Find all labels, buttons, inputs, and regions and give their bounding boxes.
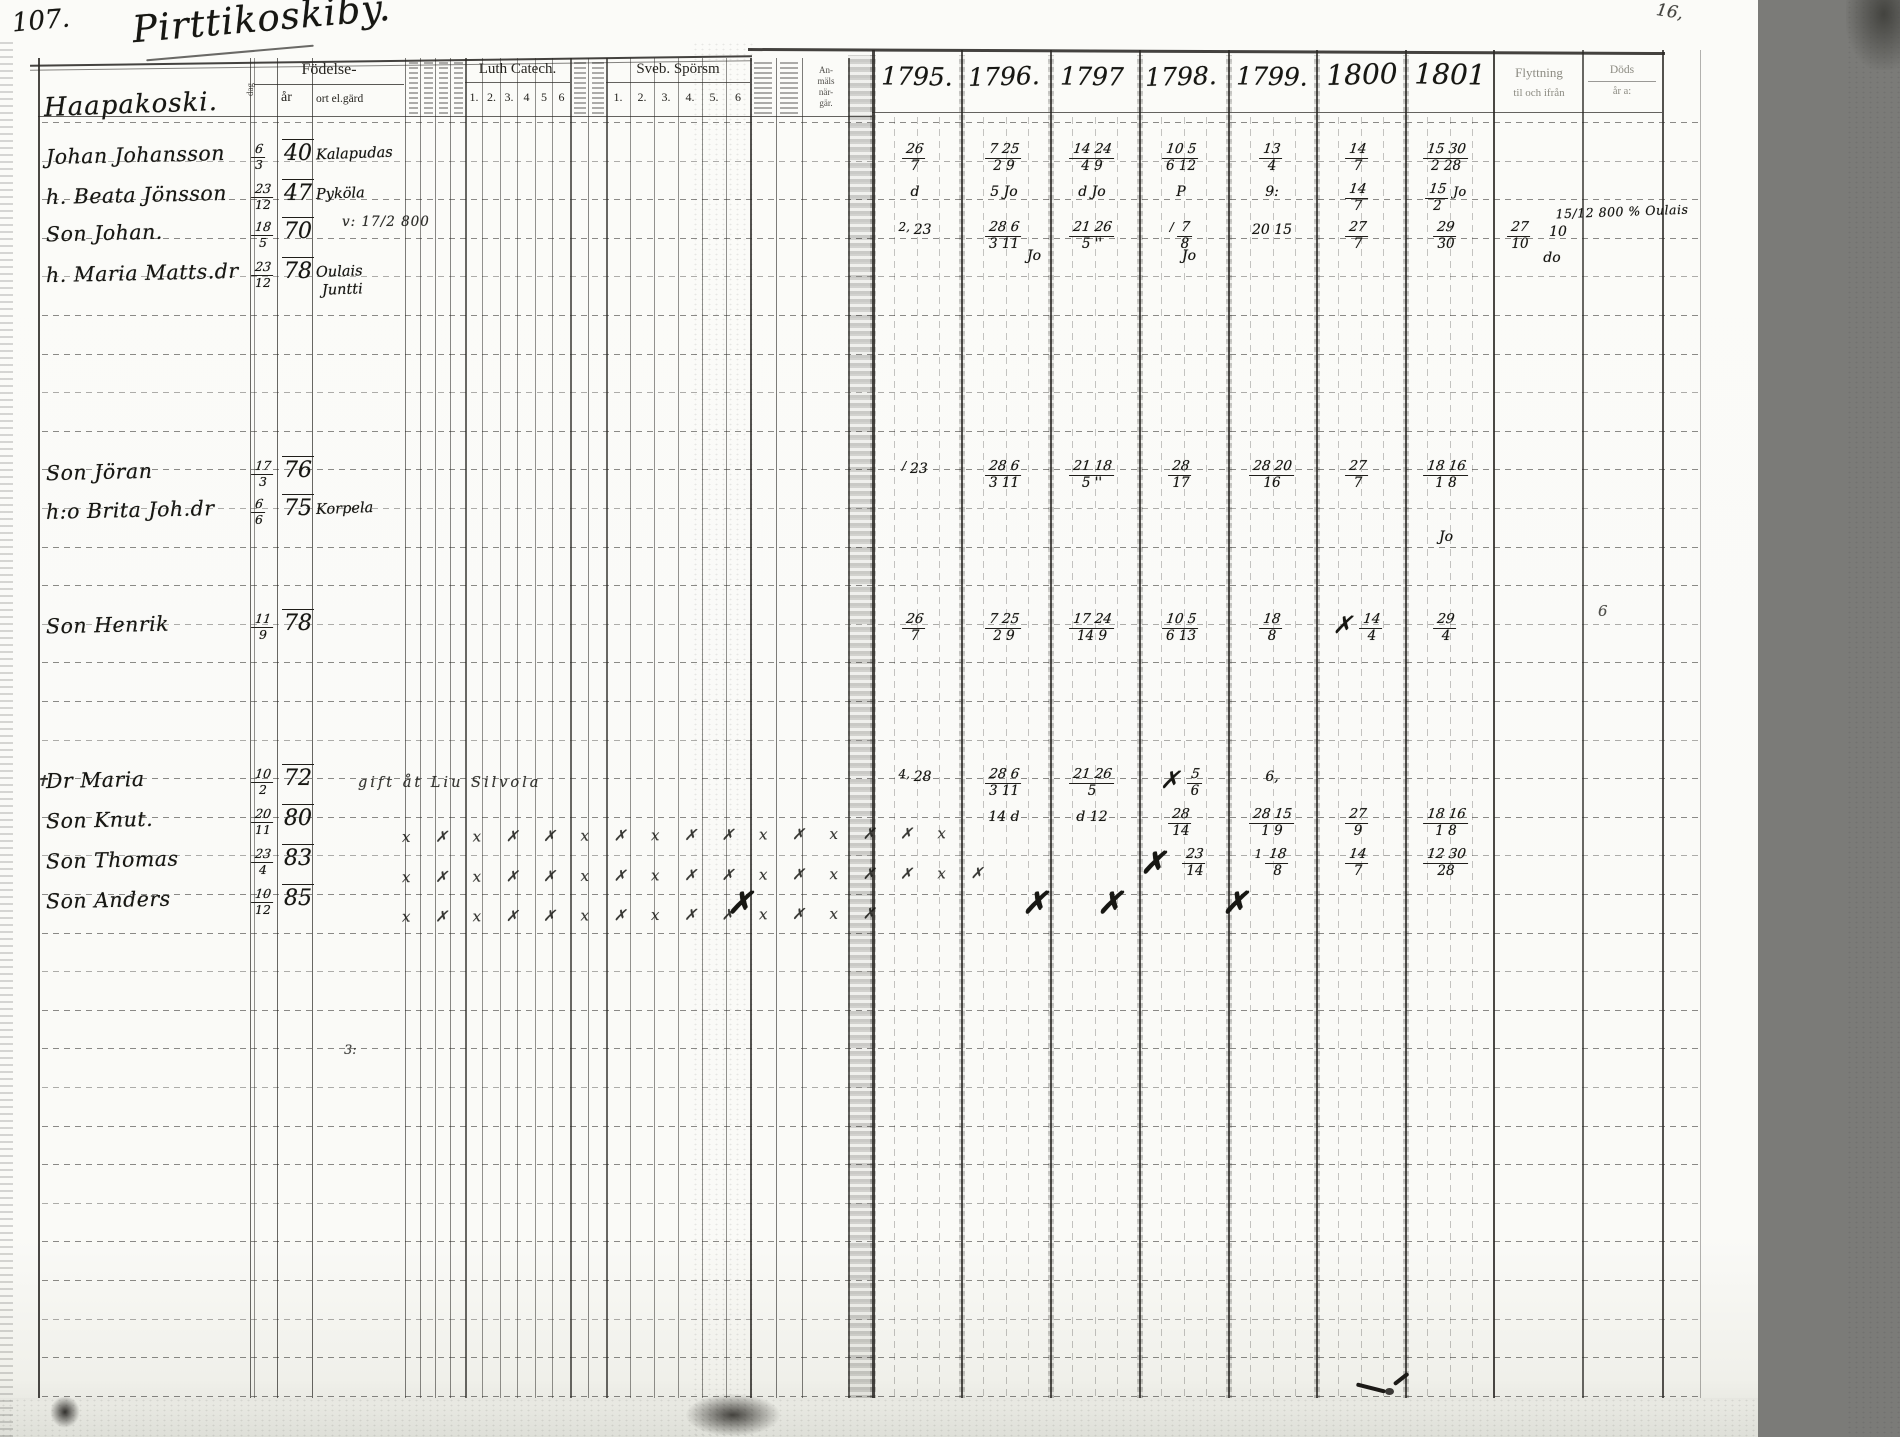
column-rule [465, 58, 467, 1398]
communion-mark: 4, 28 [887, 768, 943, 785]
year-boundary-band [1137, 55, 1143, 1398]
person-name: Dr Maria [46, 769, 145, 793]
birth-year: 78 [282, 260, 314, 283]
date-fraction: 7 252 9 [986, 613, 1022, 643]
year-subcolumn-rule [1427, 116, 1428, 1396]
mark-value: do [1543, 250, 1560, 266]
birth-date: 102 [252, 768, 274, 796]
communion-mark: ✗ 56 [1153, 768, 1209, 798]
birth-date-fraction: 2011 [252, 808, 274, 836]
communion-mark: 7 252 9 [976, 613, 1032, 643]
birth-date: 2312 [252, 261, 274, 289]
date-fraction: 18 161 8 [1424, 808, 1469, 838]
year-subcolumn-rule [894, 116, 895, 1396]
sporsm-column-number: 2. [632, 91, 652, 104]
binding-gutter-shadow [692, 42, 756, 1437]
communion-mark: 28 63 11 [976, 768, 1032, 798]
birth-date: 1012 [252, 888, 274, 916]
year-boundary-band [959, 55, 965, 1398]
year-subcolumn-rule [1361, 116, 1362, 1396]
column-rule [1582, 50, 1584, 1398]
communion-mark: 18 161 8 [1418, 808, 1474, 838]
book-cover-background [1846, 0, 1900, 1437]
birth-year: 75 [282, 497, 314, 520]
communion-mark: ✗ [1207, 888, 1263, 920]
communion-mark: d Jo [1064, 183, 1120, 200]
birth-date-fraction: 2312 [252, 183, 274, 211]
birth-year: 40 [282, 142, 314, 165]
birth-year: 76 [282, 459, 314, 482]
large-x-mark: ✗ [1140, 846, 1165, 881]
date-fraction: 21 265 [1070, 768, 1115, 798]
column-rule [630, 58, 631, 1398]
column-rule [776, 58, 777, 1398]
year-header: 1801 [1406, 59, 1494, 90]
date-fraction: 56 [1188, 768, 1203, 798]
date-fraction: 7 252 9 [986, 143, 1022, 173]
year-subcolumn-rule [1206, 116, 1207, 1396]
communion-mark: d 12 [1064, 808, 1120, 825]
communion-mark: 134 [1244, 143, 1300, 173]
date-fraction: 134 [1260, 143, 1283, 173]
vertical-header-text [574, 60, 586, 114]
bottom-page-edge [0, 1398, 1758, 1437]
birth-date-fraction: 234 [252, 848, 274, 876]
communion-mark: 18 161 8 [1418, 460, 1474, 490]
dod-header-line2: år a: [1586, 86, 1658, 97]
person-name: Son Knut. [46, 809, 154, 833]
year-header: 1796. [960, 63, 1049, 92]
column-rule [482, 58, 483, 1398]
communion-mark: 147 [1330, 143, 1386, 173]
communion-mark: 6, [1244, 768, 1300, 785]
communion-mark: ✗ [1007, 888, 1063, 920]
mark-value: 28 [914, 769, 932, 785]
catechism-note: v: 17/2 800 [342, 215, 430, 229]
communion-mark: 188 [1244, 613, 1300, 643]
date-fraction: 28 2016 [1250, 460, 1295, 490]
birth-date-fraction: 119 [252, 613, 274, 641]
luth-column-number: 2. [484, 91, 500, 104]
birth-date-fraction: 173 [252, 460, 274, 488]
birth-date: 119 [252, 613, 274, 641]
date-fraction: 28 63 11 [986, 768, 1022, 798]
mark-value: 10 [1549, 224, 1567, 240]
communion-mark: 14 d [976, 808, 1032, 825]
column-rule [570, 58, 572, 1398]
date-fraction: 28 151 9 [1250, 808, 1295, 838]
date-fraction: 267 [903, 143, 926, 173]
column-rule [588, 58, 589, 1398]
person-name: Son Thomas [46, 848, 179, 873]
date-fraction: 14 244 9 [1070, 143, 1115, 173]
birth-place: Pyköla [316, 186, 365, 203]
birth-year-value: 80 [282, 804, 314, 831]
communion-mark: 21 265 [1064, 768, 1120, 798]
anmals-header-line: när- [806, 88, 846, 97]
column-rule [1493, 50, 1495, 1398]
mark-prefix: 1 [1255, 847, 1266, 861]
column-rule [420, 58, 421, 1398]
birth-date: 66 [252, 498, 266, 526]
mark-value: 9: [1265, 184, 1279, 200]
communion-mark: 277 [1330, 221, 1386, 251]
large-x-mark: ✗ [1222, 886, 1247, 921]
vertical-header-text [454, 60, 463, 114]
mark-value: Jo [1027, 248, 1041, 264]
person-name: Son Henrik [46, 614, 170, 638]
dod-header-line1: Döds [1586, 64, 1658, 76]
column-rule [38, 58, 40, 1398]
birth-place: Kalapudas [316, 146, 393, 164]
birth-year: 70 [282, 220, 314, 243]
folio-number: 107. [11, 6, 71, 38]
mark-value: Jo [1182, 248, 1196, 264]
column-rule [552, 58, 553, 1398]
luth-column-number: 4 [519, 91, 535, 104]
mark-value: Jo [1439, 529, 1453, 545]
communion-mark: do [1524, 249, 1580, 266]
communion-mark: 2814 [1153, 808, 1209, 838]
birth-year: 72 [282, 767, 314, 790]
communion-mark: P [1153, 183, 1209, 200]
date-fraction: 188 [1266, 848, 1289, 878]
birth-year-value: 78 [282, 257, 314, 284]
mark-value: 23 [910, 461, 928, 477]
date-fraction: 188 [1260, 613, 1283, 643]
year-subcolumn-rule [1295, 116, 1296, 1396]
year-subcolumn-rule [1028, 116, 1029, 1396]
communion-mark: d [887, 183, 943, 200]
birth-year-value: 72 [282, 764, 314, 791]
date-fraction: 12 3028 [1424, 848, 1469, 878]
mark-value: P [1176, 184, 1185, 200]
communion-mark: 14 244 9 [1064, 143, 1120, 173]
column-rule [517, 58, 518, 1398]
communion-mark: 294 [1418, 613, 1474, 643]
vertical-header-text [780, 60, 798, 114]
communion-mark: 2314 [1167, 848, 1223, 878]
person-name: Son Jöran [46, 461, 153, 485]
column-rule [405, 58, 406, 1398]
mark-prefix: ✗ [1160, 766, 1188, 794]
birth-date: 234 [252, 848, 274, 876]
communion-mark: 277 [1330, 460, 1386, 490]
year-subcolumn-rule [1117, 116, 1118, 1396]
column-rule [535, 58, 536, 1398]
luth-column-number: 6 [554, 91, 570, 104]
communion-mark: Jo [1161, 247, 1217, 264]
date-fraction: 21 265 '' [1070, 221, 1115, 251]
year-header: 1800 [1318, 59, 1407, 91]
year-subcolumn-rule [1250, 116, 1251, 1396]
date-fraction: 2314 [1183, 848, 1206, 878]
date-fraction: 10 56 12 [1163, 143, 1199, 173]
anmals-header-line: mäls [806, 77, 846, 86]
year-subcolumn-rule [1338, 116, 1339, 1396]
communion-mark: 267 [887, 143, 943, 173]
flyttning-header-line2: til och ifrån [1496, 88, 1582, 100]
bottom-left-ink-blob [50, 1396, 80, 1428]
person-name: h. Beata Jönsson [46, 183, 227, 209]
birth-year: 85 [282, 887, 314, 910]
date-fraction: 147 [1346, 143, 1369, 173]
sporsm-column-number: 1. [608, 91, 628, 104]
person-name: Son Anders [46, 889, 171, 913]
birth-date-fraction: 1012 [252, 888, 274, 916]
year-header: 1795. [873, 63, 961, 91]
luth-column-number: 1. [466, 91, 482, 104]
gutter-ink-blob [686, 1394, 780, 1436]
mark-value: 20 15 [1252, 222, 1292, 238]
birth-year-value: 47 [282, 179, 314, 206]
birth-year-value: 76 [282, 456, 314, 483]
large-x-mark: ✗ [1097, 886, 1122, 921]
column-rule [435, 58, 436, 1398]
large-x-mark: ✗ [1022, 886, 1047, 921]
year-header: 1797 [1048, 63, 1136, 91]
luth-column-number: 3. [501, 91, 517, 104]
year-boundary-band [1403, 55, 1409, 1398]
date-fraction: 17 2414 9 [1070, 613, 1115, 643]
year-subcolumn-rule [1273, 116, 1274, 1396]
year-subcolumn-rule [1161, 116, 1162, 1396]
column-rule [250, 58, 251, 1398]
mark-prefix: 2, [898, 220, 913, 234]
communion-mark: 152 Jo [1418, 183, 1474, 213]
year-boundary-band [1314, 55, 1320, 1398]
year-subcolumn-rule [917, 116, 918, 1396]
communion-mark: 147 [1330, 848, 1386, 878]
person-name: Johan Johansson [46, 143, 225, 169]
year-boundary-band [1226, 55, 1232, 1398]
corner-shadow [1846, 0, 1900, 70]
flyttning-header-line1: Flyttning [1496, 66, 1582, 80]
date-fraction: 10 56 13 [1163, 613, 1199, 643]
mark-prefix: / [902, 459, 910, 473]
date-fraction: 147 [1346, 848, 1369, 878]
year-subcolumn-rule [1006, 116, 1007, 1396]
sporsm-column-number: 3. [656, 91, 676, 104]
date-fraction: 2814 [1169, 808, 1192, 838]
mark-value: 5 Jo [990, 184, 1017, 200]
vertical-header-text [424, 60, 433, 114]
mark-value: 14 d [988, 809, 1019, 825]
communion-mark: ✗ 144 [1330, 613, 1386, 643]
communion-mark: 2, 23 [887, 221, 943, 238]
birth-year-value: 40 [282, 139, 314, 166]
communion-mark: 15 302 28 [1418, 143, 1474, 173]
birth-place-header: ort el.gärd [316, 93, 363, 105]
person-name: h. Maria Matts.dr [46, 261, 239, 287]
birth-date: 173 [252, 460, 274, 488]
year-header: 1798. [1137, 63, 1226, 92]
column-rule [654, 58, 655, 1398]
column-rule [254, 58, 255, 1398]
date-fraction: 294 [1434, 613, 1457, 643]
mark-value: d 12 [1076, 809, 1107, 825]
year-subcolumn-rule [1072, 116, 1073, 1396]
stray-mark: 3: [344, 1044, 357, 1058]
communion-mark: / 23 [887, 460, 943, 477]
birth-year-header: år [281, 91, 292, 106]
communion-mark: 10 56 13 [1153, 613, 1209, 643]
birth-place: Korpela [316, 501, 374, 518]
scanned-register-page: 107. Pirttikoskiby. Födelse- dag år ort … [0, 0, 1900, 1437]
communion-mark: 10 56 12 [1153, 143, 1209, 173]
birth-year-value: 70 [282, 217, 314, 244]
anmals-header-line: An- [806, 66, 846, 75]
vertical-header-text [409, 60, 418, 114]
header-bottom-rule [872, 112, 1662, 113]
communion-mark: 28 151 9 [1244, 808, 1300, 838]
mark-prefix: 4, [898, 767, 913, 781]
birth-date-fraction: 102 [252, 768, 274, 796]
person-name: Son Johan. [46, 222, 163, 246]
birth-year-value: 85 [282, 884, 314, 911]
communion-mark: 17 2414 9 [1064, 613, 1120, 643]
birth-date-fraction: 185 [252, 221, 274, 249]
date-fraction: 147 [1346, 183, 1369, 213]
mark-value: d Jo [1078, 184, 1105, 200]
communion-mark: 1 188 [1244, 848, 1300, 878]
luth-column-number: 5 [536, 91, 552, 104]
birth-date: 63 [252, 143, 266, 171]
birth-date-fraction: 2312 [252, 261, 274, 289]
date-fraction: 152 [1426, 183, 1449, 213]
birth-year-value: 75 [282, 494, 314, 521]
marriage-note: gift åt Liu Silvola [358, 776, 541, 791]
communion-mark: 12 3028 [1418, 848, 1474, 878]
date-fraction: 2710 [1508, 221, 1531, 251]
date-fraction: 144 [1360, 613, 1383, 643]
left-page-cut-edge [0, 40, 13, 1437]
year-subcolumn-rule [1184, 116, 1185, 1396]
communion-mark: ✗ [1082, 888, 1138, 920]
vertical-header-text [439, 60, 448, 114]
right-edge-mark: 6 [1598, 604, 1608, 620]
catechism-x-marks: x ✗ x ✗ ✗ x ✗ x ✗ ✗ x ✗ x ✗ [402, 906, 885, 925]
book-page-edges [1752, 0, 1850, 1437]
communion-mark: 28 2016 [1244, 460, 1300, 490]
birth-place-line2: Juntti [322, 282, 363, 299]
communion-mark: 9: [1244, 183, 1300, 200]
birth-year: 78 [282, 612, 314, 635]
date-fraction: 277 [1346, 221, 1369, 251]
date-fraction: 2930 [1434, 221, 1457, 251]
column-rule [450, 58, 451, 1398]
communion-mark: Jo [1418, 528, 1474, 545]
vertical-header-text [754, 60, 772, 114]
date-fraction: 2817 [1169, 460, 1192, 490]
date-fraction: 279 [1346, 808, 1369, 838]
communion-mark: 2930 [1418, 221, 1474, 251]
mark-value: d [911, 184, 920, 200]
year-subcolumn-rule [1472, 116, 1473, 1396]
leaf-edge-band [848, 55, 872, 1398]
dod-box-line [1588, 81, 1656, 82]
communion-mark: 7 252 9 [976, 143, 1032, 173]
communion-mark: 147 [1330, 183, 1386, 213]
date-fraction: 15 302 28 [1424, 143, 1469, 173]
mark-suffix: Jo [1449, 185, 1466, 200]
date-fraction: 18 161 8 [1424, 460, 1469, 490]
year-subcolumn-rule [983, 116, 984, 1396]
year-subcolumn-rule [1095, 116, 1096, 1396]
vertical-header-text [592, 60, 604, 114]
top-right-margin-mark: 16, [1655, 2, 1685, 24]
date-fraction: 21 185 '' [1070, 460, 1115, 490]
ink-dot [1385, 1388, 1394, 1395]
mark-value: 6, [1265, 769, 1278, 785]
birth-year: 47 [282, 182, 314, 205]
birth-place: Oulais [316, 264, 363, 281]
year-subcolumn-rule [1383, 116, 1384, 1396]
communion-mark: 28 63 11 [976, 460, 1032, 490]
column-rule [500, 58, 501, 1398]
birth-date-fraction: 66 [252, 498, 266, 526]
mark-value: 23 [914, 222, 932, 238]
communion-mark: 5 Jo [976, 183, 1032, 200]
column-rule [277, 58, 278, 1398]
birth-year: 80 [282, 807, 314, 830]
date-fraction: 267 [903, 613, 926, 643]
column-rule [1662, 50, 1664, 1398]
column-rule [678, 58, 679, 1398]
birth-date: 2312 [252, 183, 274, 211]
column-rule [802, 58, 803, 1398]
communion-mark: 20 15 [1244, 221, 1300, 238]
communion-mark: 267 [887, 613, 943, 643]
birth-date: 2011 [252, 808, 274, 836]
year-subcolumn-rule [939, 116, 940, 1396]
communion-mark: 279 [1330, 808, 1386, 838]
date-fraction: 28 63 11 [986, 460, 1022, 490]
birth-date: 185 [252, 221, 274, 249]
farm-name: Haapakoski. [44, 89, 219, 122]
communion-mark: 2817 [1153, 460, 1209, 490]
anmals-header-line: gär. [806, 99, 846, 108]
communion-mark: Jo [1006, 247, 1062, 264]
communion-mark: 10 [1530, 223, 1586, 240]
communion-mark: 21 265 '' [1064, 221, 1120, 251]
mark-prefix: ✗ [1333, 611, 1361, 639]
birth-date-fraction: 63 [252, 143, 266, 171]
column-rule [606, 58, 608, 1398]
column-rule [1700, 50, 1701, 1398]
birth-year-value: 83 [282, 844, 314, 871]
year-header: 1799. [1228, 63, 1316, 91]
year-subcolumn-rule [1450, 116, 1451, 1396]
date-fraction: 277 [1346, 460, 1369, 490]
mark-prefix: / [1170, 220, 1178, 234]
person-name: h:o Brita Joh.dr [46, 498, 215, 523]
birth-year: 83 [282, 847, 314, 870]
birth-year-value: 78 [282, 609, 314, 636]
communion-mark: 21 185 '' [1064, 460, 1120, 490]
